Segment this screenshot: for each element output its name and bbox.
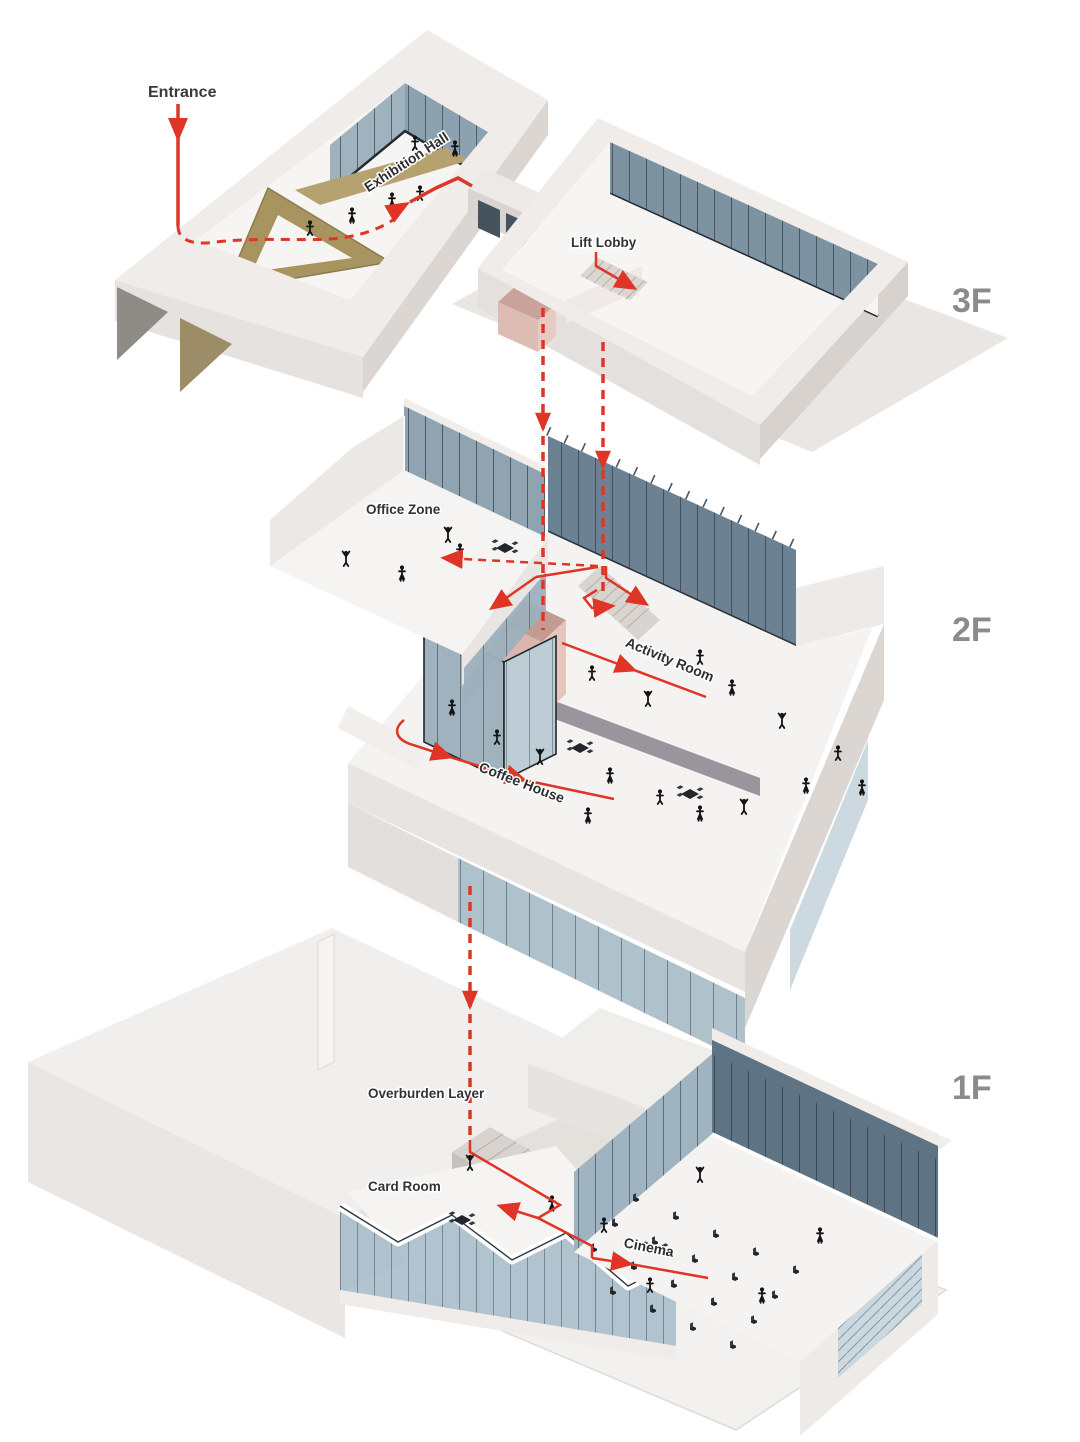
exploded-axonometric-diagram: Entrance Exhibition Hall Lift Lobby Offi…: [0, 0, 1080, 1442]
floor-label-2f: 2F: [952, 611, 992, 649]
label-office-zone: Office Zone: [366, 502, 441, 517]
floor-1f: [28, 928, 952, 1436]
label-overburden-layer: Overburden Layer: [368, 1086, 485, 1101]
label-entrance: Entrance: [148, 84, 217, 101]
floor-label-3f: 3F: [952, 282, 992, 320]
diagram-canvas: Entrance Exhibition Hall Lift Lobby Offi…: [0, 0, 1080, 1442]
label-lift-lobby: Lift Lobby: [571, 235, 637, 250]
label-card-room: Card Room: [368, 1179, 441, 1194]
floor-label-1f: 1F: [952, 1069, 992, 1107]
